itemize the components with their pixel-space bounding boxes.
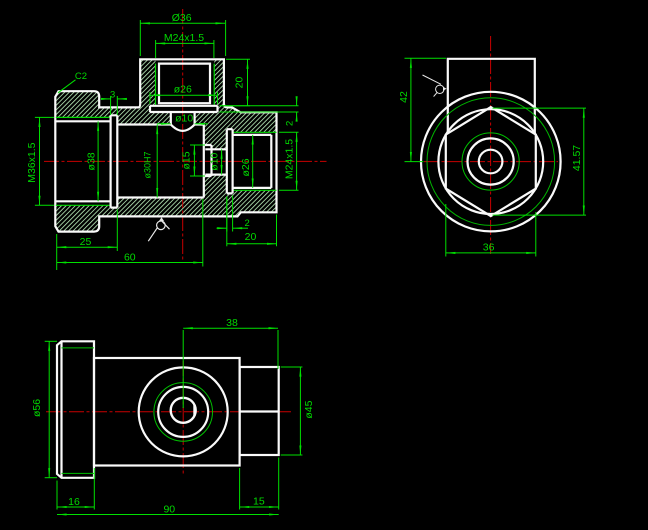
svg-text:2: 2 (245, 218, 250, 229)
svg-text:15: 15 (253, 495, 265, 507)
svg-text:M36x1.5: M36x1.5 (26, 142, 38, 182)
svg-text:25: 25 (80, 236, 92, 248)
svg-text:3: 3 (110, 89, 115, 100)
svg-text:ø38: ø38 (86, 152, 98, 170)
svg-text:16: 16 (68, 496, 80, 508)
svg-text:C2: C2 (75, 71, 87, 82)
svg-text:ø30H7: ø30H7 (142, 151, 152, 178)
svg-text:ø15: ø15 (181, 151, 193, 169)
svg-text:ø10: ø10 (175, 112, 193, 124)
svg-text:20: 20 (245, 231, 257, 243)
svg-text:20: 20 (234, 77, 246, 89)
svg-text:ø56: ø56 (31, 399, 43, 417)
svg-text:Ø36: Ø36 (172, 12, 192, 24)
svg-text:42: 42 (398, 91, 410, 103)
svg-text:ø10: ø10 (209, 152, 221, 170)
svg-text:41.57: 41.57 (571, 145, 583, 171)
svg-text:ø26: ø26 (174, 84, 192, 96)
svg-text:36: 36 (483, 242, 495, 254)
svg-text:M24x1.5: M24x1.5 (164, 32, 204, 44)
svg-text:M24x1.5: M24x1.5 (283, 139, 295, 179)
svg-text:38: 38 (226, 317, 238, 329)
svg-text:90: 90 (163, 503, 175, 515)
svg-text:ø26: ø26 (240, 158, 252, 176)
svg-text:ø45: ø45 (303, 400, 315, 418)
svg-text:2: 2 (284, 121, 295, 126)
svg-text:60: 60 (124, 251, 136, 263)
